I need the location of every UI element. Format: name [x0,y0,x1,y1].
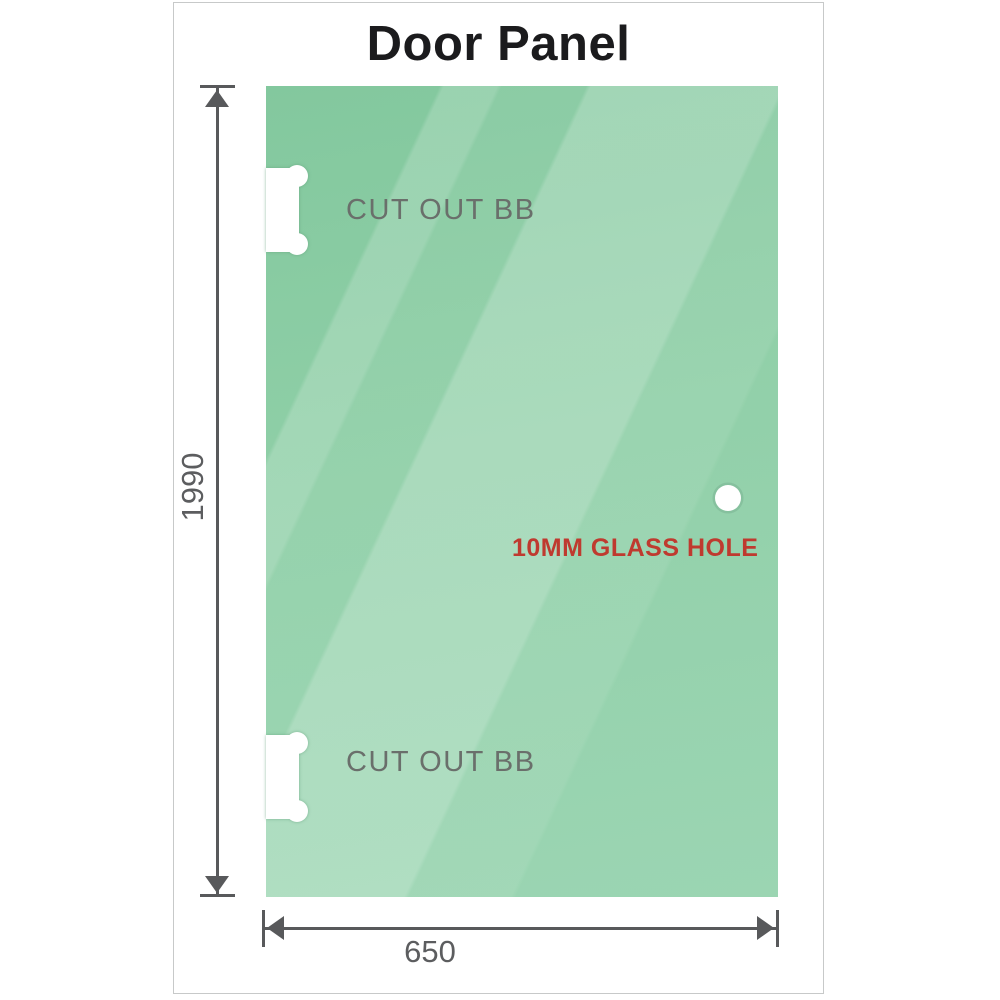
height-dimension-label: 1990 [173,442,213,532]
diagram-canvas: Door Panel CUT OUT BB CUT OUT BB 10MM GL… [0,0,1000,1000]
glass-hole-icon [715,485,741,511]
glass-hole-label: 10MM GLASS HOLE [512,534,758,563]
hinge-cutout-lobe [286,732,308,754]
glass-panel: CUT OUT BB CUT OUT BB 10MM GLASS HOLE [266,86,778,897]
hinge-cutout-top-icon [266,165,310,255]
hinge-cutout-lobe [286,800,308,822]
cutout-top-label: CUT OUT BB [346,194,536,227]
hinge-cutout-bottom-icon [266,732,310,822]
cutout-bottom-label: CUT OUT BB [346,746,536,779]
dimension-line [216,88,219,895]
width-dimension-label: 650 [385,934,475,970]
page-title: Door Panel [173,16,824,72]
hinge-cutout-lobe [286,165,308,187]
dimension-line [265,927,777,930]
dimension-cap [776,910,779,947]
arrow-right-icon [757,916,774,940]
arrow-down-icon [205,876,229,893]
dimension-cap [200,894,235,897]
hinge-cutout-lobe [286,233,308,255]
